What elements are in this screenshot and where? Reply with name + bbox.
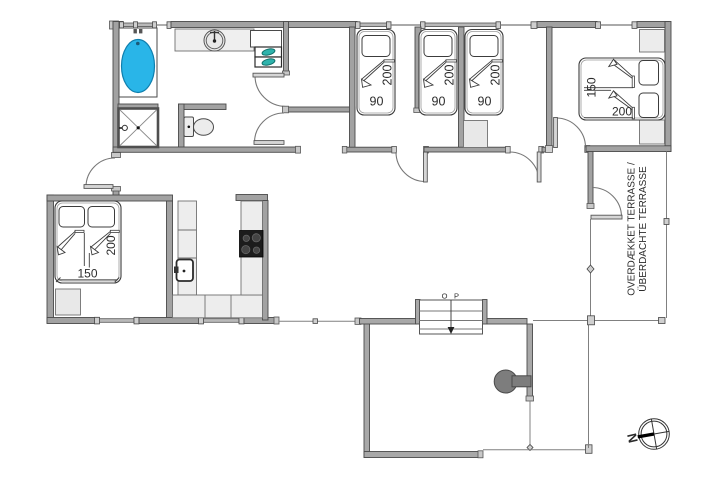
svg-text:OVERDÆKKET TERRASSE /: OVERDÆKKET TERRASSE / (627, 162, 638, 296)
svg-text:150: 150 (585, 77, 599, 97)
svg-text:P: P (454, 292, 459, 301)
svg-text:90: 90 (478, 94, 492, 108)
svg-text:ÜBERDACHTE TERRASSE: ÜBERDACHTE TERRASSE (637, 166, 649, 292)
svg-text:200: 200 (381, 65, 395, 86)
svg-text:200: 200 (443, 65, 457, 86)
svg-text:90: 90 (432, 94, 446, 108)
svg-text:200: 200 (104, 235, 118, 255)
svg-text:90: 90 (370, 94, 384, 108)
svg-text:200: 200 (612, 105, 632, 119)
svg-text:200: 200 (489, 65, 503, 86)
svg-text:O: O (442, 292, 448, 301)
svg-text:150: 150 (77, 266, 97, 280)
